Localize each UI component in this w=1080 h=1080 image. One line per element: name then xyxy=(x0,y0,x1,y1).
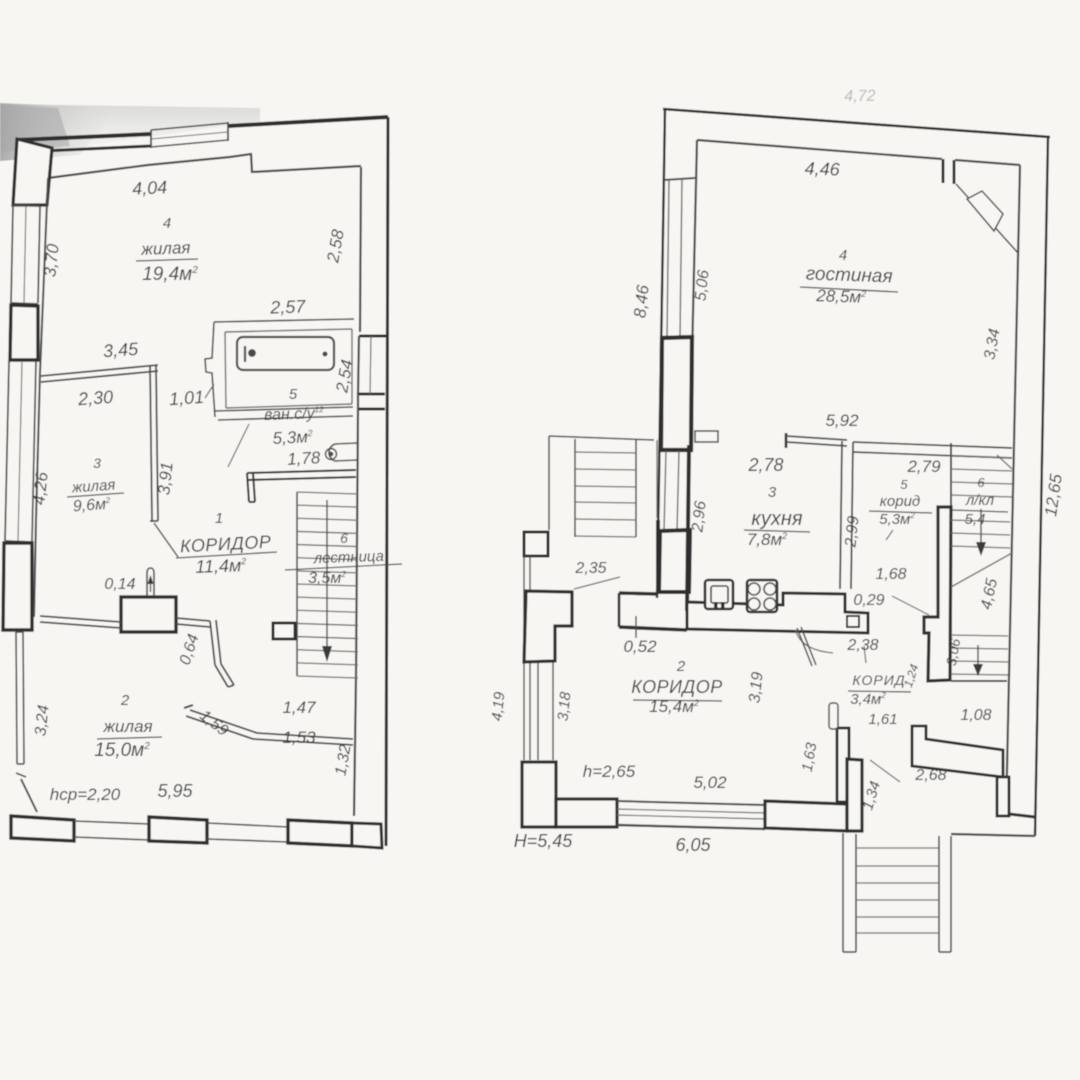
svg-text:9,6м2: 9,6м2 xyxy=(72,496,111,516)
svg-text:2,35: 2,35 xyxy=(574,560,606,577)
svg-text:4: 4 xyxy=(839,247,847,264)
svg-text:hср=2,20: hср=2,20 xyxy=(50,785,121,804)
svg-text:0,29: 0,29 xyxy=(853,592,884,609)
svg-text:3: 3 xyxy=(93,455,101,471)
svg-text:корид: корид xyxy=(880,493,920,510)
svg-text:H=5,45: H=5,45 xyxy=(514,831,574,851)
svg-text:2,99: 2,99 xyxy=(842,515,862,549)
svg-text:5,02: 5,02 xyxy=(693,773,727,792)
svg-text:1,53: 1,53 xyxy=(282,728,316,747)
svg-text:3,45: 3,45 xyxy=(102,339,139,361)
svg-text:л/кл: л/кл xyxy=(965,492,995,509)
svg-text:5: 5 xyxy=(289,386,298,403)
svg-text:4: 4 xyxy=(163,215,171,232)
svg-text:5,95: 5,95 xyxy=(157,781,193,801)
svg-text:15,0м2: 15,0м2 xyxy=(94,740,150,761)
svg-text:2,96: 2,96 xyxy=(689,500,709,534)
svg-text:5,4: 5,4 xyxy=(965,511,986,528)
svg-text:2,57: 2,57 xyxy=(269,296,307,317)
svg-text:19,4м2: 19,4м2 xyxy=(142,264,198,285)
svg-text:3: 3 xyxy=(768,484,777,501)
svg-text:КОРИД: КОРИД xyxy=(852,672,905,688)
svg-text:1,78: 1,78 xyxy=(287,448,322,469)
svg-text:2,79: 2,79 xyxy=(906,457,941,476)
svg-text:2: 2 xyxy=(120,692,130,709)
svg-text:1,47: 1,47 xyxy=(282,698,316,717)
svg-text:3,4м2: 3,4м2 xyxy=(850,691,886,708)
svg-text:4,46: 4,46 xyxy=(804,158,841,179)
svg-text:2,68: 2,68 xyxy=(914,767,946,784)
svg-text:6: 6 xyxy=(340,530,348,546)
svg-text:кухня: кухня xyxy=(751,508,802,530)
svg-text:3,18: 3,18 xyxy=(555,690,575,721)
svg-text:h=2,65: h=2,65 xyxy=(583,762,636,781)
svg-text:лестница: лестница xyxy=(312,548,384,567)
svg-text:4,26: 4,26 xyxy=(29,470,51,505)
svg-text:2,78: 2,78 xyxy=(747,455,783,475)
svg-text:1,01: 1,01 xyxy=(168,387,204,409)
svg-text:3,70: 3,70 xyxy=(40,242,62,277)
svg-text:5,92: 5,92 xyxy=(825,411,859,430)
svg-text:жилая: жилая xyxy=(140,238,191,259)
svg-text:28,5м2: 28,5м2 xyxy=(815,286,866,307)
svg-text:15,4м2: 15,4м2 xyxy=(649,697,699,716)
svg-text:7,8м2: 7,8м2 xyxy=(747,530,787,549)
svg-text:11,4м2: 11,4м2 xyxy=(195,555,247,577)
svg-text:2: 2 xyxy=(676,658,686,675)
svg-text:4,04: 4,04 xyxy=(132,177,168,199)
svg-text:6: 6 xyxy=(977,475,985,490)
svg-text:2,30: 2,30 xyxy=(76,387,113,409)
svg-text:гостиная: гостиная xyxy=(805,263,892,287)
svg-text:4,19: 4,19 xyxy=(489,690,509,721)
svg-text:3,5м2: 3,5м2 xyxy=(308,570,346,587)
svg-text:жилая: жилая xyxy=(102,717,152,736)
svg-text:0,52: 0,52 xyxy=(623,637,657,656)
svg-text:6,05: 6,05 xyxy=(675,835,711,855)
svg-text:5,3м2: 5,3м2 xyxy=(879,511,915,528)
svg-text:1: 1 xyxy=(215,510,223,527)
svg-text:5: 5 xyxy=(900,477,908,492)
svg-text:5,06: 5,06 xyxy=(692,269,712,302)
svg-text:1,08: 1,08 xyxy=(960,707,991,724)
svg-text:КОРИДОР: КОРИДОР xyxy=(631,677,722,697)
svg-text:4,72: 4,72 xyxy=(844,88,876,106)
svg-text:3,24: 3,24 xyxy=(32,704,52,737)
svg-text:0,14: 0,14 xyxy=(104,576,135,593)
svg-text:3,19: 3,19 xyxy=(746,671,766,704)
svg-text:8,46: 8,46 xyxy=(630,283,652,318)
svg-text:1,61: 1,61 xyxy=(868,711,897,728)
svg-text:5,3м2: 5,3м2 xyxy=(272,427,313,448)
svg-text:2,38: 2,38 xyxy=(846,637,878,654)
svg-text:3,91: 3,91 xyxy=(154,461,176,496)
svg-text:1,68: 1,68 xyxy=(875,566,906,583)
